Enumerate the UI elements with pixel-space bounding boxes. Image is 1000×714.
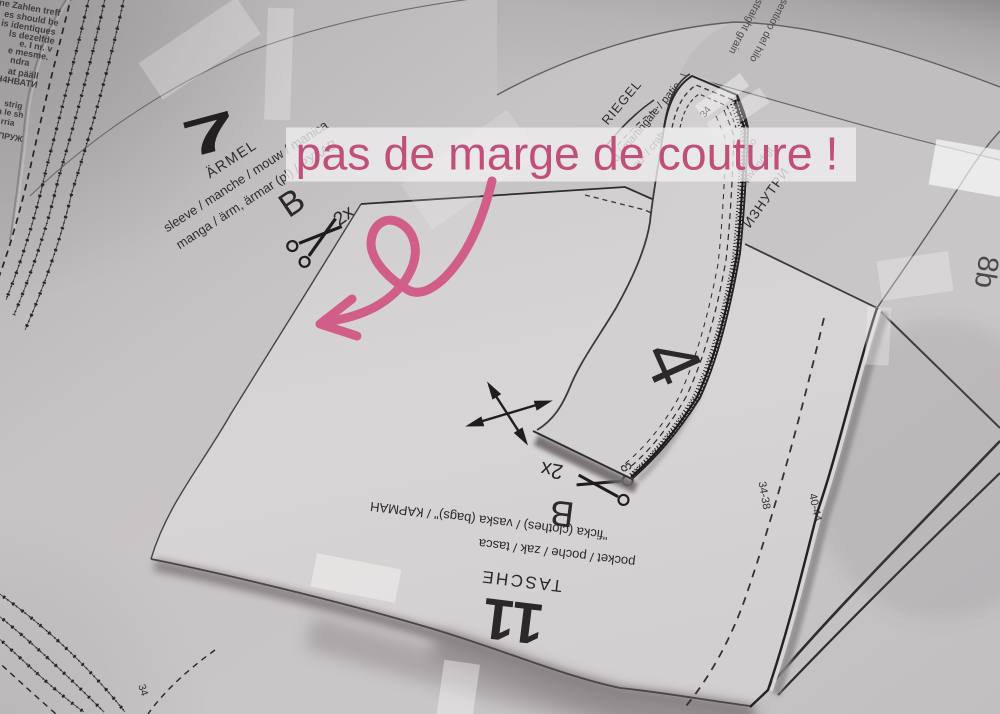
- svg-text:8b: 8b: [968, 254, 1000, 291]
- svg-text:11: 11: [479, 585, 548, 657]
- svg-text:2x: 2x: [539, 457, 565, 484]
- svg-text:pas de marge de couture !: pas de marge de couture !: [296, 128, 839, 180]
